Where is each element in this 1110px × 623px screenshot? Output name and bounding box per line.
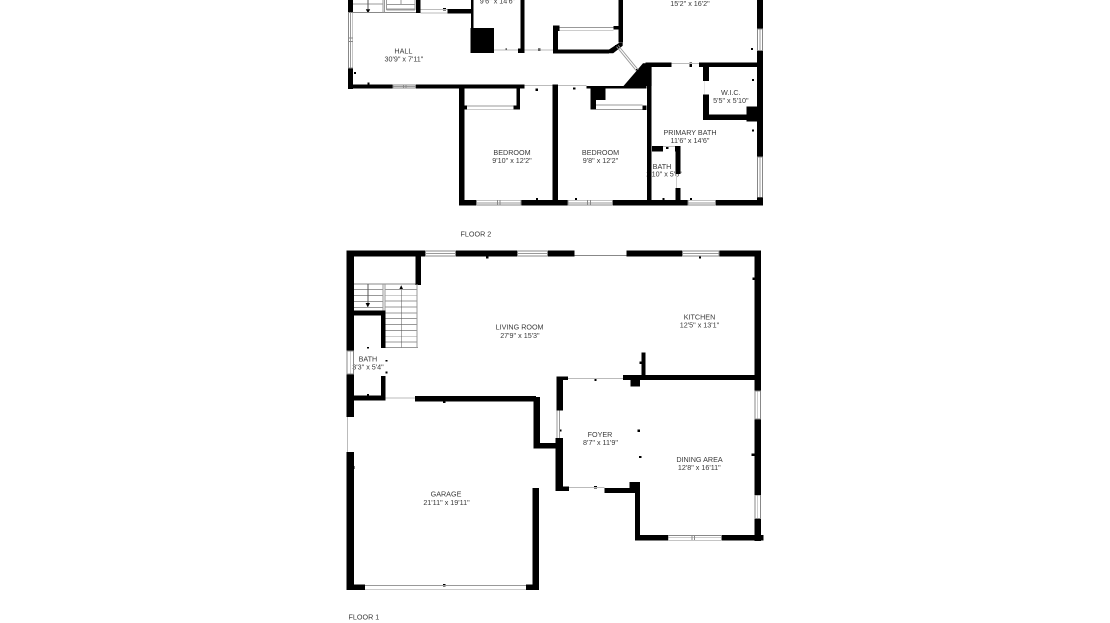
svg-text:FLOOR 2: FLOOR 2 bbox=[461, 229, 492, 238]
svg-text:9'6" x 14'6": 9'6" x 14'6" bbox=[480, 0, 516, 5]
svg-text:3'3" x 5'4": 3'3" x 5'4" bbox=[352, 363, 384, 372]
svg-text:9'8" x 12'2": 9'8" x 12'2" bbox=[583, 156, 619, 165]
svg-text:9'10" x 12'2": 9'10" x 12'2" bbox=[492, 156, 532, 165]
svg-text:FLOOR 1: FLOOR 1 bbox=[349, 613, 380, 622]
svg-text:11'6" x 14'6": 11'6" x 14'6" bbox=[671, 136, 710, 145]
svg-text:12'5" x 13'1": 12'5" x 13'1" bbox=[680, 321, 720, 330]
svg-text:21'11" x 19'11": 21'11" x 19'11" bbox=[423, 498, 470, 507]
svg-text:15'2" x 16'2": 15'2" x 16'2" bbox=[670, 0, 710, 8]
svg-text:12'8" x 16'11": 12'8" x 16'11" bbox=[678, 463, 721, 472]
svg-text:5'5" x 5'10": 5'5" x 5'10" bbox=[713, 96, 749, 105]
svg-text:8'7" x 11'9": 8'7" x 11'9" bbox=[583, 438, 618, 447]
svg-text:30'9" x 7'11": 30'9" x 7'11" bbox=[384, 54, 423, 63]
svg-text:27'9" x 15'3": 27'9" x 15'3" bbox=[500, 331, 540, 340]
